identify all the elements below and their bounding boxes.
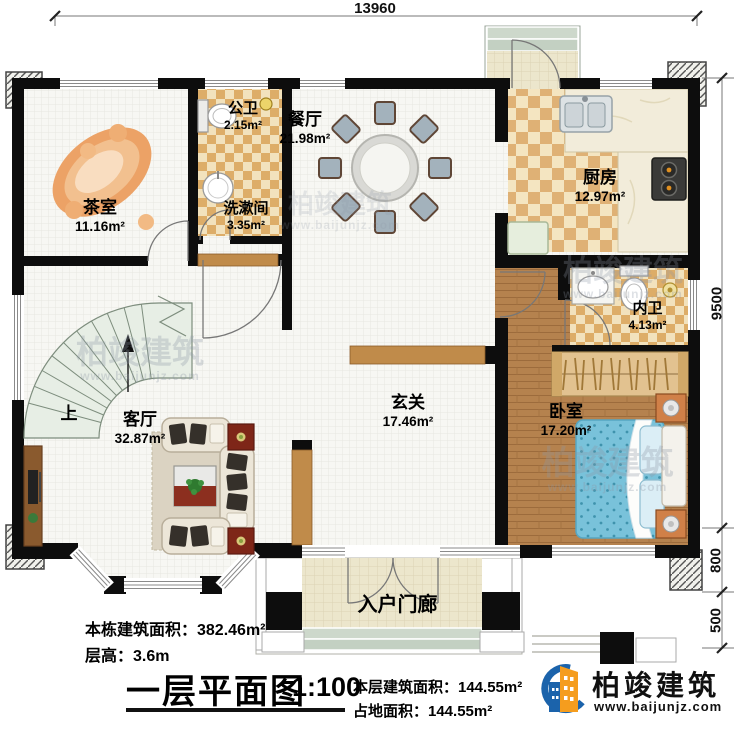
wardrobe-symbol <box>552 352 688 396</box>
room-label-bedroom: 卧室17.20m² <box>511 402 621 439</box>
dimension-right-500: 500 <box>708 601 725 641</box>
brand-logo-icon <box>538 660 588 718</box>
fridge-symbol <box>508 222 548 254</box>
room-label-dining: 餐厅21.98m² <box>250 110 360 147</box>
room-label-kitchen: 厨房12.97m² <box>545 168 655 205</box>
total-building-area: 本栋建筑面积：382.46m² <box>85 616 266 640</box>
coffee-table-symbol <box>174 466 216 506</box>
plan-title: 一层平面图 <box>126 664 306 713</box>
room-label-living: 客厅32.87m² <box>85 410 195 447</box>
plan-scale: 1:100 <box>292 672 361 703</box>
dimension-top: 13960 <box>330 0 420 17</box>
footprint-area: 占地面积：144.55m² <box>353 700 492 721</box>
floor-height: 层高：3.6m <box>85 642 169 666</box>
room-label-porch: 入户门廊 <box>315 593 480 617</box>
dimension-right-9500: 9500 <box>709 281 726 327</box>
title-underline <box>126 708 345 712</box>
dimension-right-800: 800 <box>708 541 725 581</box>
room-label-inner-bath: 内卫4.13m² <box>595 300 700 333</box>
floor-area: 本层建筑面积：144.55m² <box>353 676 522 697</box>
brand-url: www.baijunjz.com <box>594 699 722 714</box>
stove-symbol <box>652 158 686 200</box>
kitchen-sink-symbol <box>560 96 612 132</box>
stairs-up-label: 上 <box>52 404 86 425</box>
room-label-foyer: 玄关17.46m² <box>353 393 463 430</box>
floor-plan-page: 柏竣建筑 www.baijunjz.com 柏竣建筑 www.baijunjz.… <box>0 0 750 730</box>
room-label-washroom: 洗漱间3.35m² <box>191 200 301 233</box>
room-label-tea-room: 茶室11.16m² <box>45 198 155 235</box>
brand-logo: 柏竣建筑 www.baijunjz.com <box>538 658 750 728</box>
brand-name: 柏竣建筑 <box>592 664 720 704</box>
tv-cabinet-symbol <box>24 446 42 546</box>
